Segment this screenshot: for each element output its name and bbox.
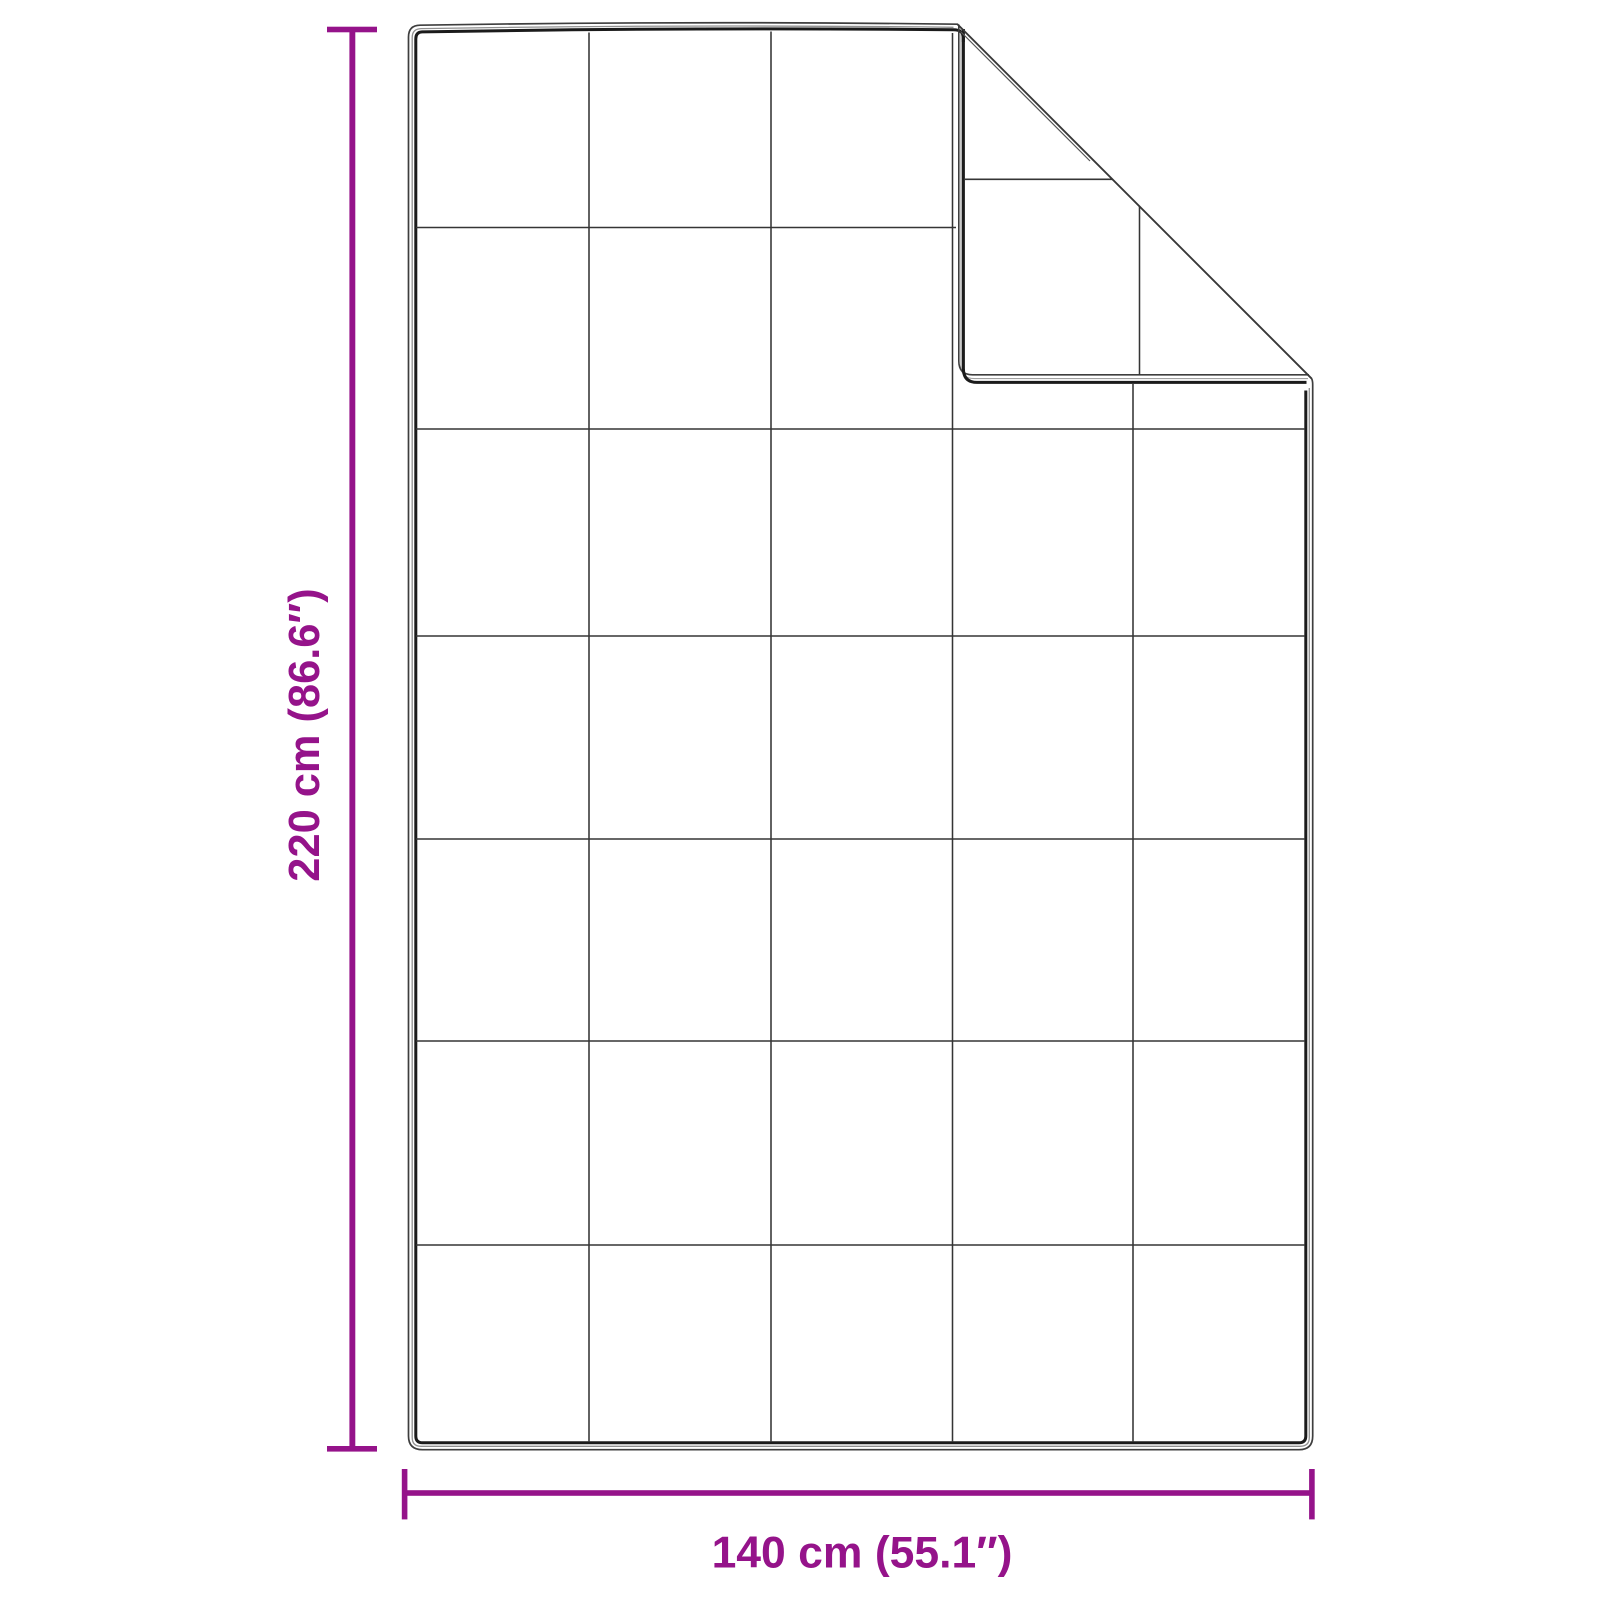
svg-text:220 cm (86.6″): 220 cm (86.6″) bbox=[281, 588, 329, 881]
svg-text:140 cm (55.1″): 140 cm (55.1″) bbox=[712, 1529, 1013, 1578]
